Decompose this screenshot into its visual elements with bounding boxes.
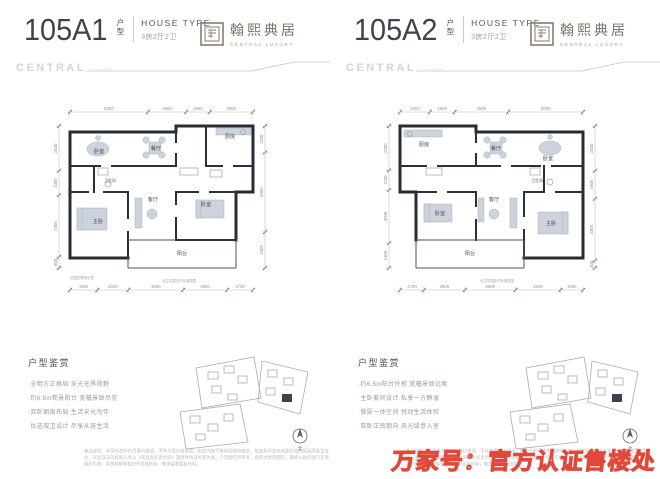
features-heading: 户型鉴赏 (28, 356, 168, 369)
unit-type-char-top: 户 (117, 18, 125, 27)
svg-text:2500: 2500 (383, 143, 388, 153)
svg-text:花园边界线示意: 花园边界线示意 (70, 275, 94, 280)
svg-text:客厅: 客厅 (489, 195, 499, 203)
svg-text:卧室: 卧室 (435, 209, 445, 217)
brand-logo: 翰熙典居 CENTRAL LUXURY (530, 20, 628, 47)
deco-central-word: CENTRAL (346, 62, 416, 74)
svg-text:1700: 1700 (407, 284, 417, 289)
brand-seal-icon (200, 22, 224, 46)
svg-text:1700: 1700 (235, 284, 245, 289)
deco-central-word: CENTRAL (16, 62, 86, 74)
panel-105a2: 105A2 户 型 HOUSE TYPE 3房2厅2卫 翰熙典居 CENTRAL… (330, 0, 660, 479)
svg-text:厨房: 厨房 (419, 140, 429, 148)
deco-luxury-word: LUXURY (90, 67, 113, 72)
header-divider (133, 16, 134, 43)
svg-text:3600: 3600 (485, 284, 495, 289)
deco-central-text: CENTRAL LUXURY (16, 62, 113, 74)
feature-item: ·约6.5m观景阳台 宽幅景致尽览 (28, 392, 168, 406)
brand-seal-icon (530, 22, 554, 46)
svg-text:400: 400 (589, 260, 594, 268)
unit-type-char-bottom: 型 (117, 27, 125, 36)
features-block: 户型鉴赏 ·全明方正格局 采光无界视野 ·约6.5m观景阳台 宽幅景致尽览 ·双… (28, 356, 168, 434)
svg-text:卫生间: 卫生间 (531, 178, 543, 183)
svg-text:1600: 1600 (567, 284, 577, 289)
svg-text:阳台: 阳台 (465, 249, 475, 257)
site-buildings (190, 366, 293, 440)
features-block: 户型鉴赏 ·约6.5m阳台外拓 宽幅景致远眺 ·主卧套间设计 私享一方静谧 ·餐… (358, 356, 498, 434)
svg-text:客厅: 客厅 (148, 195, 158, 203)
unit-number: 105A2 (354, 14, 437, 45)
svg-text:2950: 2950 (227, 106, 237, 111)
feature-item: ·双卧正南朝向 风光绿意入室 (358, 420, 498, 434)
brand-name: 翰熙典居 (560, 20, 628, 40)
feature-item: ·餐厨一体空间 悦动生活体验 (358, 406, 498, 420)
svg-text:2040: 2040 (108, 284, 118, 289)
feature-item: ·优选双卫设计 尽享从容生活 (28, 420, 168, 434)
svg-text:阳台: 阳台 (177, 249, 187, 257)
svg-text:卫生间: 卫生间 (104, 178, 116, 183)
svg-text:3300: 3300 (259, 187, 264, 197)
svg-text:2900: 2900 (440, 284, 450, 289)
svg-text:3300: 3300 (589, 224, 594, 234)
disclaimer-text: 备注说明：本宣传资料仅为要约邀请，不作为要约或承诺，相关内容不排除因政府规划、规… (84, 449, 329, 468)
svg-text:1800: 1800 (79, 284, 89, 289)
deco-central-text: CENTRAL LUXURY (346, 62, 443, 74)
unit-header: 105A1 户 型 HOUSE TYPE 3房2厅2卫 (24, 14, 211, 45)
unit-type-char-top: 户 (447, 18, 455, 27)
svg-text:3600: 3600 (151, 284, 161, 289)
svg-text:卧室: 卧室 (94, 147, 104, 155)
svg-text:1650: 1650 (437, 106, 447, 111)
svg-text:1100: 1100 (383, 175, 388, 185)
svg-text:1500: 1500 (259, 245, 264, 255)
panel-105a1: 105A1 户 型 HOUSE TYPE 3房2厅2卫 翰熙典居 CENTRAL… (0, 0, 330, 479)
brand-name: 翰熙典居 (230, 20, 298, 40)
features-heading: 户型鉴赏 (358, 356, 498, 369)
floor-plan-a2: 2000165036005000170029003600320016002500… (380, 102, 602, 302)
svg-text:卧室: 卧室 (201, 200, 211, 208)
brand-subtitle: CENTRAL LUXURY (230, 42, 298, 47)
header-divider (463, 16, 464, 43)
svg-text:5000: 5000 (541, 106, 551, 111)
deco-luxury-word: LUXURY (420, 67, 443, 72)
svg-text:1400: 1400 (383, 250, 388, 260)
floor-plan-a1: 5300260016002950180020403600290017002400… (50, 102, 272, 302)
unit-type-label: 户 型 (447, 18, 455, 36)
feature-item: ·约6.5m阳台外拓 宽幅景致远眺 (358, 378, 498, 392)
svg-text:业主花园交付标准范围: 业主花园交付标准范围 (480, 278, 515, 283)
brand-subtitle: CENTRAL LUXURY (560, 42, 628, 47)
brochure-page: 105A1 户 型 HOUSE TYPE 3房2厅2卫 翰熙典居 CENTRAL… (0, 0, 660, 479)
floor-plan-furniture (77, 128, 251, 230)
svg-text:厨房: 厨房 (225, 132, 235, 140)
svg-text:3200: 3200 (533, 284, 543, 289)
svg-text:1600: 1600 (193, 106, 203, 111)
svg-text:3000: 3000 (383, 211, 388, 221)
brand-logo: 翰熙典居 CENTRAL LUXURY (200, 20, 298, 47)
site-map: 北 (498, 352, 648, 452)
svg-text:2000: 2000 (410, 106, 420, 111)
svg-text:600: 600 (53, 258, 58, 266)
feature-item: ·主卧套间设计 私享一方静谧 (358, 392, 498, 406)
svg-text:1300: 1300 (53, 178, 58, 188)
svg-text:2400: 2400 (53, 143, 58, 153)
svg-text:1100: 1100 (259, 134, 264, 144)
highlighted-building (612, 394, 622, 402)
svg-text:卧室: 卧室 (543, 154, 553, 162)
svg-text:1500: 1500 (589, 179, 594, 189)
svg-text:餐厅: 餐厅 (491, 144, 501, 152)
svg-text:5300: 5300 (104, 106, 114, 111)
site-map: 北 (168, 352, 318, 452)
watermark-text: 万家号：官方认证售楼处 (390, 442, 658, 476)
feature-item: ·双卧朝南布局 生活采光为伴 (28, 406, 168, 420)
feature-item: ·全明方正格局 采光无界视野 (28, 378, 168, 392)
svg-text:餐厅: 餐厅 (151, 144, 161, 152)
svg-text:主卧: 主卧 (546, 219, 556, 227)
unit-number: 105A1 (24, 14, 107, 45)
svg-text:2400: 2400 (589, 143, 594, 153)
site-buildings (520, 366, 623, 440)
svg-text:3600: 3600 (477, 106, 487, 111)
unit-type-label: 户 型 (117, 18, 125, 36)
svg-text:3300: 3300 (53, 221, 58, 231)
svg-text:业主花园交付标准范围: 业主花园交付标准范围 (162, 278, 197, 283)
unit-header: 105A2 户 型 HOUSE TYPE 3房2厅2卫 (354, 14, 541, 45)
svg-text:2900: 2900 (200, 284, 210, 289)
svg-text:主卧: 主卧 (93, 217, 103, 225)
unit-type-char-bottom: 型 (447, 27, 455, 36)
highlighted-building (282, 394, 292, 402)
svg-text:2600: 2600 (162, 106, 172, 111)
